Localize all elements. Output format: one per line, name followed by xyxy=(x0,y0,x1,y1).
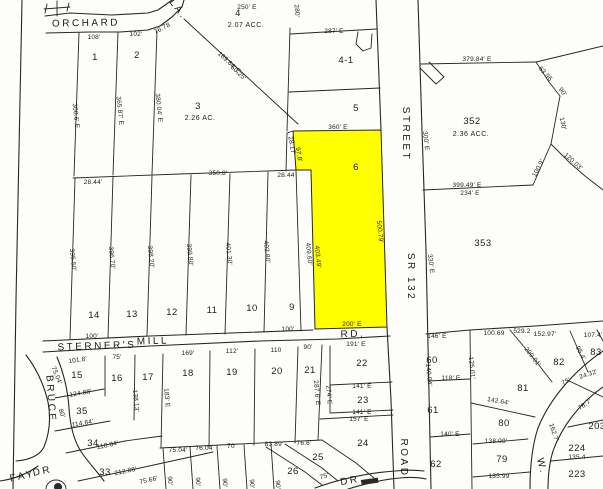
parcel-label-19: 19 xyxy=(226,367,238,378)
parcel-label-20: 20 xyxy=(271,366,283,377)
street-road-west-edge xyxy=(376,0,381,130)
dimension-label: 108' xyxy=(88,34,101,41)
dimension-label: 112' xyxy=(226,348,238,355)
dimension-label: 300.6' E xyxy=(71,103,81,129)
dimension-label: 125.01' xyxy=(467,356,476,379)
dimension-label: 76.78 xyxy=(153,21,172,35)
dimension-label: 90' xyxy=(166,476,174,486)
parcel-label-352: 352 xyxy=(463,116,480,127)
lot17-18-line xyxy=(161,354,163,447)
street-label-dr: DR. xyxy=(339,473,365,488)
parcel-label-13: 13 xyxy=(126,309,138,320)
flag-notch xyxy=(356,32,372,51)
map-border-left xyxy=(13,0,22,489)
dimension-label: 142.64' xyxy=(487,396,510,407)
parcel-label-61: 61 xyxy=(427,405,439,416)
parcel-label-14: 14 xyxy=(88,310,100,321)
dimension-label: 75' xyxy=(112,354,121,361)
lot27-line xyxy=(163,448,166,489)
dimension-label: 138.13' xyxy=(131,389,140,412)
street-label-sr-132: SR 132 xyxy=(405,253,416,301)
dimension-label: 90' xyxy=(274,480,282,489)
dimension-label: 75.66' xyxy=(139,475,159,486)
orchard-north-edge xyxy=(45,0,172,16)
parcel-label-80: 80 xyxy=(498,418,510,429)
dimension-label: 146' E xyxy=(427,333,447,340)
dimension-label: 191' E xyxy=(346,341,366,348)
dimension-label: 118' E xyxy=(442,375,461,382)
dimension-label: 130' xyxy=(558,117,568,131)
dimension-label: 63.96 xyxy=(537,65,554,83)
dimension-label: 399.80' xyxy=(185,243,194,266)
acreage-label: 2.07 ACC. xyxy=(228,22,264,29)
dimension-label: 287.6' E xyxy=(312,380,321,406)
street-label-street-road-bottom: ROAD xyxy=(398,439,409,478)
road-spur-flag xyxy=(420,62,444,84)
dimension-label: 120.03' xyxy=(562,152,583,172)
dimension-label: 162.7' xyxy=(547,423,559,443)
dimension-label: 274' E xyxy=(324,385,333,405)
parcel-label-203: 203 xyxy=(588,421,603,432)
parcel-label-24: 24 xyxy=(357,438,369,449)
dimension-label: 234' E xyxy=(460,190,480,197)
street-label-orchard-la: ORCHARD xyxy=(52,17,120,29)
plat-map-canvas[interactable]: ORCHARDLA.STREETSR 132ROADSTERNER'SMILLR… xyxy=(0,0,603,489)
parcel-label-3: 3 xyxy=(195,101,201,112)
dimension-label: 200.01' xyxy=(522,346,541,368)
dimension-label: 395.50' xyxy=(68,248,77,271)
dimension-label: 114.84' xyxy=(71,418,94,429)
dimension-label: 287' E xyxy=(324,28,344,35)
street-label-w-street: W. xyxy=(534,457,549,476)
parcel-label-223: 223 xyxy=(568,469,585,480)
acreage-label: 2.26 AC. xyxy=(185,115,216,122)
lot20-21-line xyxy=(295,347,298,443)
parcel-label-16: 16 xyxy=(111,373,123,384)
dimension-label: 398.20' xyxy=(146,245,155,268)
dimension-label: 365.87' E xyxy=(114,96,124,126)
dimension-label: 141' E xyxy=(352,409,372,416)
dimension-label: 157' E xyxy=(349,416,369,423)
lot41-5-divider xyxy=(289,88,380,92)
dimension-label: 75' xyxy=(561,376,572,387)
dimension-label: 141' E xyxy=(352,383,372,390)
plat-map-image: ORCHARDLA.STREETSR 132ROADSTERNER'SMILLR… xyxy=(0,0,603,489)
parcel-label-353: 353 xyxy=(474,238,491,249)
dimension-label: 135.99 xyxy=(488,473,509,480)
dimension-label: 360' E xyxy=(328,124,348,131)
dimension-label: 409.60' xyxy=(304,242,313,265)
dimension-label: 140' E xyxy=(440,431,460,438)
street-label-fay-dr: DR xyxy=(32,464,53,479)
dimension-label: 90' xyxy=(303,344,312,351)
dimension-label: 76.6' xyxy=(297,440,312,447)
dimension-label: 396.70' xyxy=(107,246,116,269)
dimension-label: 100.69 xyxy=(483,330,504,337)
dimension-label: 124.88' xyxy=(69,388,92,399)
parcel-label-224: 224 xyxy=(568,443,585,454)
parcel-label-5: 5 xyxy=(353,103,359,114)
dimension-label: 135.4 xyxy=(568,454,585,461)
street-label-sterners: STERNER'S xyxy=(57,340,136,354)
highlighted-parcel-6[interactable] xyxy=(293,130,387,329)
parcel-label-35: 35 xyxy=(76,406,88,417)
dimension-label: 250' E xyxy=(237,4,257,11)
parcel-label-1: 1 xyxy=(92,52,98,63)
dimension-label: 83.89' xyxy=(265,441,284,448)
parcel-label-4-1: 4-1 xyxy=(338,55,353,66)
row-top-line xyxy=(73,170,296,178)
dimension-label: 350.8' xyxy=(209,170,228,177)
parcel-label-10: 10 xyxy=(246,303,258,314)
dimension-label: 90' xyxy=(194,477,202,487)
lot30-line xyxy=(244,445,247,489)
dimension-label: 107.4' xyxy=(584,332,603,339)
parcel-label-26: 26 xyxy=(287,466,299,477)
boundary-ne xyxy=(536,46,603,62)
lot9-right xyxy=(296,170,301,331)
dimension-label: 24.32' xyxy=(579,368,599,380)
dimension-label: 75.04' xyxy=(169,447,188,454)
acreage-label: 2.36 ACC. xyxy=(453,131,489,138)
dimension-label: 78.7' xyxy=(577,398,593,412)
dimension-label: 380.04' E xyxy=(153,93,163,123)
street-label-street-road-top: STREET xyxy=(400,107,411,161)
dimension-label: 100.9' xyxy=(531,158,546,178)
dimension-label: 183' E xyxy=(162,388,171,408)
parcel-label-9: 9 xyxy=(289,302,295,313)
dimension-label: 28.44' xyxy=(84,179,103,186)
dark-blob xyxy=(54,483,62,489)
dimension-label: 110 xyxy=(271,347,282,354)
lot18-19-line xyxy=(209,351,210,447)
dimension-label: 90' xyxy=(557,86,568,97)
dimension-label: 101.8' xyxy=(68,356,88,366)
dimension-label: 76.04 xyxy=(195,445,212,452)
parcel-label-11: 11 xyxy=(207,305,218,316)
dimension-label: 402.80' xyxy=(262,240,271,263)
lot28-line xyxy=(190,447,193,489)
dimension-label: 169' xyxy=(182,350,195,357)
dimension-label: 140.04' xyxy=(424,363,433,386)
dimension-label: 28.44 xyxy=(277,172,294,179)
dimension-label: 529.2 xyxy=(513,328,530,335)
parcel-label-12: 12 xyxy=(166,307,178,318)
sterners-north-edge xyxy=(43,330,313,341)
parcel-label-33: 33 xyxy=(99,467,111,478)
dimension-label: 401.30' xyxy=(224,242,233,265)
parcel-label-81: 81 xyxy=(517,383,529,394)
parcel-label-6: 6 xyxy=(353,162,359,173)
parcel-label-83: 83 xyxy=(590,347,602,358)
dimension-label: 200' E xyxy=(342,321,362,328)
dimension-label: 102' xyxy=(130,31,143,38)
dimension-label: 152.97' xyxy=(534,331,557,338)
lot29-line xyxy=(217,446,220,489)
parcel-label-62: 62 xyxy=(430,459,442,470)
parcel-label-21: 21 xyxy=(304,365,316,376)
dimension-label: 212.88' xyxy=(114,466,137,478)
parcel-label-25: 25 xyxy=(312,452,324,463)
parcel-label-18: 18 xyxy=(182,368,194,379)
dimension-label: 95.4' xyxy=(574,345,587,361)
street-label-mill: MILL xyxy=(137,335,170,347)
dimension-label: 399.49' E xyxy=(452,182,482,189)
lot82-203-divider xyxy=(567,380,603,397)
dimension-label: 379.84' E xyxy=(462,56,492,63)
parcel-label-2: 2 xyxy=(134,50,140,61)
dimension-label: 100' xyxy=(282,326,295,333)
parcel-label-82: 82 xyxy=(553,357,565,368)
dimension-label: 90' xyxy=(221,478,229,488)
lot19-20-line xyxy=(254,349,255,445)
dimension-label: 100' xyxy=(86,333,99,340)
bruce-west-edge xyxy=(16,355,50,461)
parcel-label-15: 15 xyxy=(71,370,83,381)
street-road-west-lower xyxy=(387,327,394,489)
dimension-label: 118.84' xyxy=(96,440,119,451)
parcel-label-23: 23 xyxy=(357,395,369,406)
lot5-6-divider xyxy=(287,131,293,133)
parcel-label-22: 22 xyxy=(356,358,368,369)
parcel-label-79: 79 xyxy=(496,454,508,465)
dimension-label: 138.09' xyxy=(485,438,508,445)
street-label-rd: RD. xyxy=(340,329,365,341)
parcel-label-17: 17 xyxy=(142,372,154,383)
dimension-label: 330' E xyxy=(426,254,435,275)
lots60-62-right xyxy=(470,330,472,489)
dimension-label: 70 xyxy=(227,443,235,450)
dimension-label: 280' xyxy=(292,4,300,17)
dimension-label: 90' xyxy=(248,479,256,489)
